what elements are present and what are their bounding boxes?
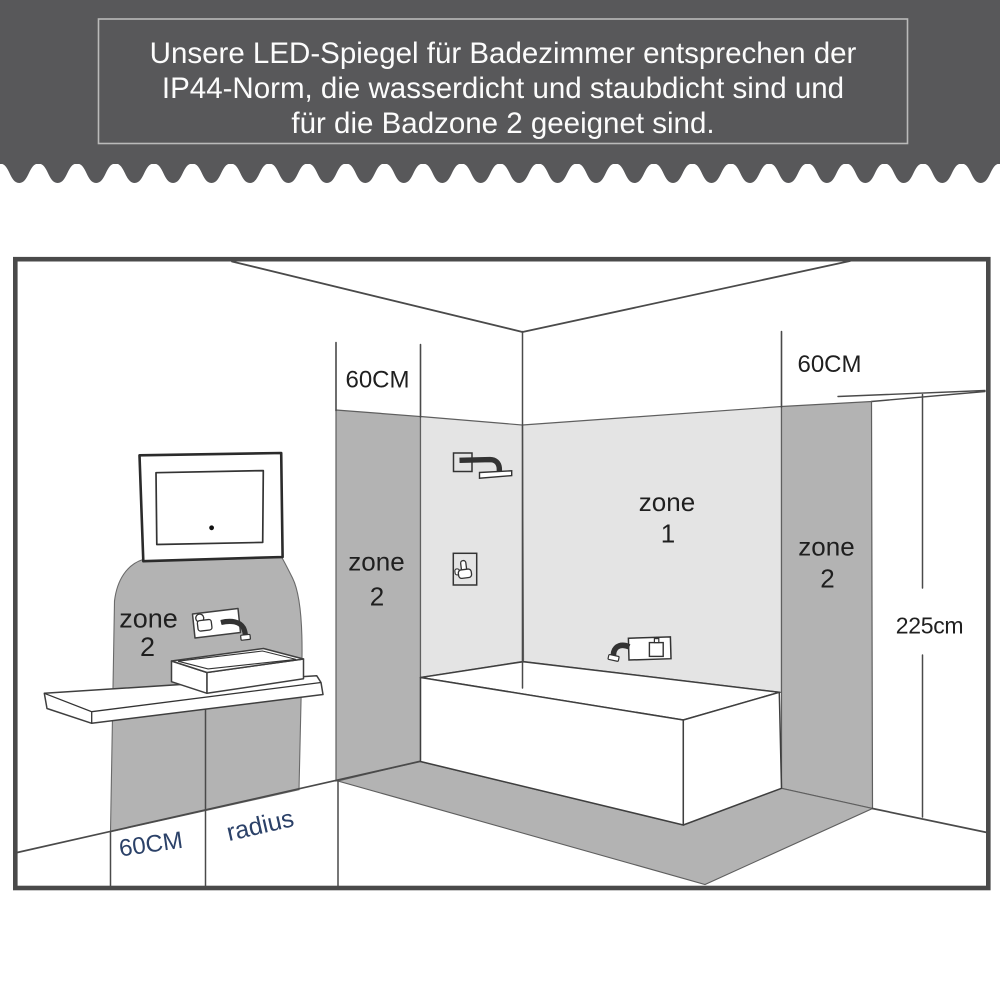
label-zone2-basin-number: 2 (140, 632, 155, 662)
label-zone1-word: zone (639, 487, 695, 517)
zone2-right-wall-stripe (782, 402, 873, 809)
label-zone2-right-word: zone (798, 532, 854, 562)
label-zone2-basin-word: zone (119, 604, 178, 634)
label-width-floor: 60CM (117, 827, 184, 863)
label-radius: radius (224, 804, 297, 847)
led-mirror (140, 453, 283, 561)
header-text-line-3: für die Badzone 2 geeignet sind. (291, 107, 714, 140)
header-banner: Unsere LED-Spiegel für Badezimmer entspr… (0, 0, 1000, 183)
header-text-line-1: Unsere LED-Spiegel für Badezimmer entspr… (150, 37, 857, 70)
right-wall-floor-line (873, 809, 988, 833)
led-mirror-bathroom-zones-infographic: Unsere LED-Spiegel für Badezimmer entspr… (0, 0, 1000, 1000)
label-zone1-number: 1 (661, 519, 675, 549)
label-zone2-left-number: 2 (370, 582, 384, 612)
label-zone2-right-number: 2 (820, 564, 834, 594)
bathroom-diagram: 60CM 60CM zone 1 zone 2 zone 2 zone 2 22… (15, 259, 988, 888)
header-text-line-2: IP44-Norm, die wasserdicht und staubdich… (162, 72, 844, 105)
label-width-top-right: 60CM (797, 351, 861, 378)
wavy-edge (0, 164, 1000, 184)
label-width-top-left: 60CM (345, 367, 409, 394)
label-wall-height: 225cm (896, 613, 964, 639)
mirror-touch-sensor-dot (209, 525, 214, 530)
label-zone2-left-word: zone (348, 547, 404, 577)
